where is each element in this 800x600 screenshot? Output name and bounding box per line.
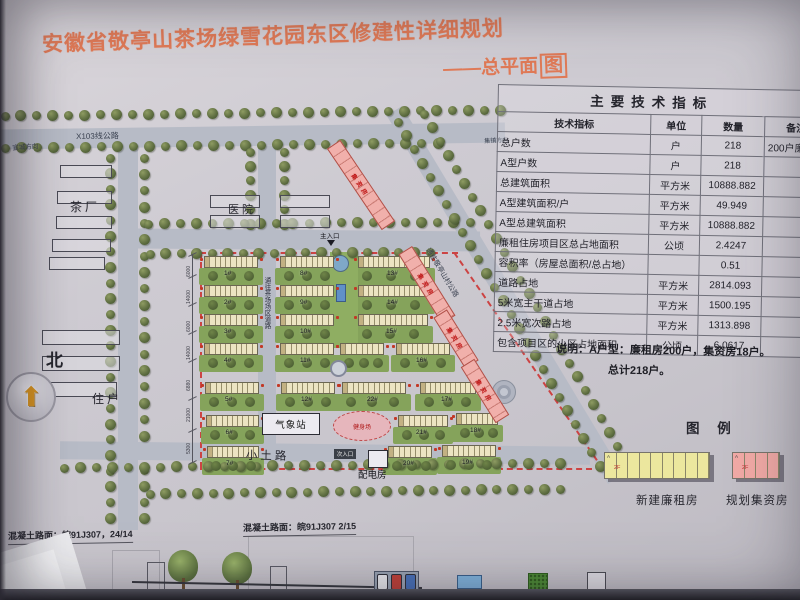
roadside-tree — [105, 481, 116, 492]
housing-unit — [379, 344, 383, 354]
building-number: 17# — [441, 396, 452, 403]
roadside-tree — [304, 139, 315, 150]
housing-row — [358, 314, 428, 326]
shrub — [498, 447, 501, 450]
photo-bottom-edge — [0, 589, 800, 600]
shrub — [276, 316, 279, 319]
main-entrance-arrow-icon — [327, 240, 335, 246]
roadside-tree — [394, 118, 403, 127]
housing-unit — [253, 257, 257, 267]
roadside-tree — [106, 154, 115, 163]
roadside-tree — [492, 485, 501, 494]
roadside-tree — [208, 140, 219, 151]
garden-tree — [208, 300, 218, 310]
housing-row — [388, 446, 432, 458]
roadside-tree — [140, 317, 149, 326]
roadside-tree — [271, 107, 282, 118]
indicator-value: 2.4247 — [699, 235, 762, 256]
indicator-unit: 平方米 — [649, 174, 700, 195]
shrub — [438, 447, 441, 450]
shrub — [200, 287, 203, 290]
roadside-tree — [209, 489, 218, 498]
table-grid: 技术指标单位数量备注 总户数户218200户廉租房A型户数户218总建筑面积平方… — [493, 111, 800, 358]
roadside-tree — [140, 415, 149, 424]
roadside-tree — [288, 108, 297, 117]
indicator-value: 218 — [701, 135, 764, 156]
roadside-tree — [299, 460, 310, 471]
table-col-header: 备注 — [765, 117, 800, 138]
housing-unit — [443, 416, 447, 426]
garden-tree — [245, 397, 255, 407]
garden-tree — [389, 397, 399, 407]
housing-unit — [254, 383, 258, 393]
roadside-tree — [556, 485, 565, 494]
indicator-value: 10888.882 — [700, 215, 763, 236]
page-subtitle-boxed-char: 图 — [540, 53, 568, 79]
indicator-remark — [763, 177, 800, 198]
roadside-tree — [80, 142, 91, 153]
north-arrow-circle: ⬆ — [6, 372, 56, 422]
page-subtitle: ——总平面图 — [443, 50, 568, 81]
indicator-remark — [764, 157, 800, 178]
shrub — [201, 384, 204, 387]
indicator-value: 49.949 — [700, 195, 763, 216]
weather-station-box: 气象站 — [262, 413, 320, 435]
housing-unit — [253, 315, 257, 325]
indicator-unit: 户 — [650, 154, 701, 175]
roadside-tree — [257, 141, 266, 150]
roadside-tree — [223, 488, 234, 499]
car-white-icon — [377, 574, 388, 590]
roadside-tree — [320, 108, 329, 117]
housing-row — [206, 415, 259, 427]
roadside-tree — [139, 332, 150, 343]
shrub — [392, 345, 395, 348]
garden-tree — [320, 271, 330, 281]
legend-swatch-规划集资房: A2F — [732, 452, 780, 479]
roadside-tree — [139, 202, 150, 213]
roadside-tree — [140, 154, 149, 163]
roadside-tree — [105, 513, 116, 524]
roadside-tree — [443, 150, 454, 161]
roadside-tree — [146, 490, 155, 499]
map-label-通往茶场场区道路: 通往茶场场区道路 — [261, 277, 271, 329]
roadside-tree — [246, 148, 255, 157]
roadside-tree — [413, 485, 424, 496]
dimension-value: 14000 — [186, 290, 192, 304]
legend-floor-tag: 2F — [614, 465, 620, 471]
roadside-tree — [47, 110, 58, 121]
roadside-tree — [112, 141, 123, 152]
map-label-小土路: 小土路 — [246, 447, 290, 464]
indicator-remark: 200户廉租房 — [764, 137, 800, 158]
housing-unit — [427, 447, 431, 457]
housing-row — [280, 314, 334, 326]
roadside-tree — [105, 419, 116, 430]
roadside-tree — [484, 220, 493, 229]
housing-row — [280, 343, 334, 355]
garden-tree — [284, 358, 294, 368]
roadside-tree — [458, 228, 467, 237]
building-number: 14# — [387, 299, 398, 306]
existing-building — [52, 239, 111, 252]
garden-tree — [209, 397, 219, 407]
roadside-tree — [398, 486, 407, 495]
shrub — [452, 415, 455, 418]
table-note-line2: 总计218户。 — [608, 361, 671, 378]
housing-row — [281, 382, 335, 394]
garden-tree — [402, 430, 412, 440]
roadside-tree — [565, 359, 574, 368]
shrub — [276, 287, 279, 290]
indicator-remark — [762, 257, 800, 278]
garden-tree — [284, 300, 294, 310]
roadside-tree — [401, 218, 410, 227]
roadside-tree — [444, 485, 455, 496]
building-number: 20# — [403, 460, 414, 467]
roadside-tree — [337, 218, 346, 227]
building-number: 15# — [386, 328, 397, 335]
map-label-配电房: 配电房 — [358, 467, 387, 481]
roadside-tree — [463, 105, 474, 116]
roadside-tree — [225, 141, 234, 150]
roadside-tree — [192, 109, 201, 118]
garden-tree — [321, 397, 331, 407]
garden-tree — [208, 271, 218, 281]
garden-tree — [346, 397, 356, 407]
housing-unit — [329, 315, 333, 325]
garden-tree — [409, 329, 419, 339]
building-number: 8# — [300, 270, 307, 277]
building-number: 12# — [301, 396, 312, 403]
building-number: 4# — [224, 357, 231, 364]
indicator-unit: 平方米 — [647, 274, 698, 295]
roadside-tree — [106, 279, 115, 288]
housing-unit — [401, 383, 405, 393]
roadside-tree — [32, 111, 41, 120]
section-post-1 — [147, 562, 165, 592]
roadside-tree — [106, 498, 115, 507]
roadside-tree — [555, 393, 564, 402]
shrub — [203, 448, 206, 451]
roadside-tree — [177, 489, 186, 498]
roadside-tree — [508, 459, 517, 468]
roadside-tree — [246, 176, 255, 185]
map-label-主入口: 主入口 — [320, 230, 340, 240]
pond-feature — [332, 255, 349, 272]
roadside-tree — [416, 217, 427, 228]
roadside-tree — [139, 462, 150, 473]
housing-row — [204, 314, 258, 326]
technical-indicators-table: 主要技术指标 技术指标单位数量备注 总户数户218200户廉租房A型户数户218… — [493, 84, 800, 358]
indicator-remark — [763, 217, 800, 238]
roadside-tree — [442, 200, 451, 209]
roadside-tree — [546, 378, 557, 389]
roadside-tree — [523, 458, 534, 469]
building-number: 6# — [226, 429, 233, 436]
dimension-value: 21000 — [186, 408, 192, 422]
roadside-tree — [144, 141, 155, 152]
roadside-tree — [79, 110, 90, 121]
roadside-tree — [420, 110, 429, 119]
shrub — [276, 345, 279, 348]
indicator-unit — [648, 254, 699, 275]
housing-unit — [329, 286, 333, 296]
roadside-tree — [399, 106, 410, 117]
roadside-tree — [140, 382, 149, 391]
garden-tree — [284, 329, 294, 339]
roadside-tree — [97, 142, 106, 151]
table-col-header: 数量 — [702, 115, 765, 136]
indicator-unit: 平方米 — [649, 214, 700, 235]
roadside-tree — [431, 105, 442, 116]
garden-tree — [359, 358, 369, 368]
roadside-tree — [160, 248, 171, 259]
garden-tree — [460, 428, 470, 438]
shrub — [336, 316, 339, 319]
roadside-tree — [105, 450, 116, 461]
building-number: 21# — [416, 429, 427, 436]
building-number: 18# — [470, 427, 481, 434]
housing-row — [420, 382, 476, 394]
roadside-tree — [106, 373, 115, 382]
roadside-tree — [176, 219, 185, 228]
roadside-tree — [107, 462, 118, 473]
secondary-entrance-box: 次入口 — [334, 449, 356, 459]
indicator-unit: 平方米 — [647, 314, 698, 335]
roadside-tree — [139, 234, 150, 245]
road-west-road — [118, 144, 138, 530]
garden-tree — [362, 329, 372, 339]
legend-type-tag: A — [607, 454, 610, 459]
roadside-tree — [350, 486, 361, 497]
roadside-tree — [160, 488, 171, 499]
roadside-tree — [105, 293, 116, 304]
roadside-tree — [139, 398, 150, 409]
table-col-header: 单位 — [651, 114, 702, 135]
roadside-tree — [507, 484, 518, 495]
roadside-tree — [289, 140, 298, 149]
building-number: 10# — [300, 328, 311, 335]
roadside-tree — [139, 365, 150, 376]
garden-tree — [244, 300, 254, 310]
roadside-tree — [139, 300, 150, 311]
roadside-tree — [139, 431, 150, 442]
roadside-tree — [286, 487, 297, 498]
dimension-value: 6000 — [186, 266, 192, 277]
roadside-tree — [139, 513, 150, 524]
indicator-value: 218 — [701, 155, 764, 176]
housing-unit — [253, 344, 257, 354]
map-label-住户: 住户 — [92, 390, 122, 407]
roadside-tree — [352, 217, 363, 228]
roadside-tree — [452, 165, 461, 174]
roadside-tree — [64, 111, 73, 120]
shrub — [338, 384, 341, 387]
photo-left-edge — [0, 0, 6, 600]
garden-tree — [285, 397, 295, 407]
roadside-tree — [143, 109, 154, 120]
legend-unit-cell — [756, 453, 768, 478]
roadside-tree — [459, 178, 470, 189]
roadside-tree — [449, 213, 460, 224]
roadside-tree — [256, 108, 265, 117]
indicator-unit: 公顷 — [648, 234, 699, 255]
shrub — [200, 258, 203, 261]
shrub — [336, 287, 339, 290]
roadside-tree — [318, 486, 329, 497]
roadside-tree — [146, 250, 155, 259]
roadside-tree — [105, 262, 116, 273]
legend-item-label: 规划集资房 — [726, 492, 789, 508]
legend-floor-tag: 2F — [742, 465, 748, 471]
garden-tree — [410, 300, 420, 310]
shrub — [354, 287, 357, 290]
existing-building — [56, 216, 112, 229]
roadside-tree — [65, 143, 74, 152]
fundraise-block-label: 集资房 — [350, 171, 373, 198]
roadside-tree — [15, 110, 26, 121]
roadside-tree — [140, 350, 149, 359]
fitness-ground: 健身场 — [333, 411, 391, 441]
power-room-box — [368, 450, 388, 468]
indicator-remark — [761, 317, 800, 338]
roadside-tree — [171, 461, 182, 472]
roadside-tree — [436, 137, 445, 146]
legend-unit-cell — [640, 453, 652, 478]
roadside-tree — [270, 249, 279, 258]
dimension-value: 6880 — [186, 380, 192, 391]
roadside-tree — [555, 458, 566, 469]
existing-building — [280, 215, 330, 228]
roadside-tree — [352, 107, 361, 116]
roadside-tree — [417, 158, 428, 169]
roadside-tree — [106, 310, 115, 319]
roadside-tree — [381, 486, 392, 497]
roadside-tree — [385, 139, 394, 148]
legend-unit-cell — [628, 453, 640, 478]
shrub — [277, 384, 280, 387]
site-plan-photo: 1#2#3#4#5#6#7#8#9#10#11#12#13#14#15#16#2… — [0, 0, 800, 600]
shrub — [416, 384, 419, 387]
map-label-X103线公路: X103线公路 — [76, 130, 119, 142]
roadside-tree — [613, 442, 622, 451]
roadside-tree — [92, 463, 101, 472]
roadside-tree — [331, 460, 342, 471]
roadside-tree — [207, 108, 218, 119]
building-number: 2# — [224, 299, 231, 306]
garden-tree — [482, 460, 492, 470]
roadside-tree — [140, 498, 149, 507]
garden-tree — [488, 428, 498, 438]
roadside-tree — [466, 218, 475, 227]
building-number: 22# — [367, 396, 378, 403]
housing-unit — [329, 257, 333, 267]
page-subtitle-text: ——总平面 — [443, 56, 539, 80]
roadside-tree — [429, 486, 438, 495]
roadside-tree — [524, 485, 533, 494]
housing-unit — [445, 344, 449, 354]
dimension-value: 5300 — [186, 443, 192, 454]
garden-tree — [208, 358, 218, 368]
roadside-tree — [468, 193, 477, 202]
roadside-tree — [156, 463, 165, 472]
indicator-remark — [761, 297, 800, 318]
garden-tree — [284, 271, 294, 281]
map-label-医院: 医院 — [228, 201, 256, 217]
roadside-tree — [175, 108, 186, 119]
building-number: 1# — [224, 270, 231, 277]
housing-row — [205, 382, 259, 394]
indicator-value: 2814.093 — [698, 275, 761, 296]
indicator-value: 1313.898 — [698, 315, 761, 336]
dimension-value: 6000 — [186, 321, 192, 332]
roadside-tree — [448, 106, 457, 115]
shrub — [434, 448, 437, 451]
garden-tree — [244, 271, 254, 281]
existing-building — [280, 195, 330, 208]
north-arrow-icon: ⬆ — [20, 384, 43, 411]
roadside-tree — [597, 414, 606, 423]
roadside-tree — [335, 487, 344, 496]
legend-unit-cell — [674, 453, 686, 478]
roadside-tree — [140, 186, 149, 195]
roadside-tree — [604, 427, 615, 438]
roadside-tree — [280, 176, 289, 185]
shrub — [336, 258, 339, 261]
roadside-tree — [245, 161, 256, 172]
roadside-tree — [367, 106, 378, 117]
housing-row — [442, 445, 496, 457]
housing-row — [280, 285, 334, 297]
garden-tree — [320, 300, 330, 310]
roadside-tree — [160, 110, 169, 119]
roadside-tree — [279, 161, 290, 172]
building-number: 16# — [416, 357, 427, 364]
footnote-right: 混凝土路面：皖91J307 2/15 — [243, 519, 356, 537]
roadside-tree — [124, 463, 133, 472]
roadside-tree — [384, 107, 393, 116]
water-swatch-icon — [457, 575, 482, 589]
roadside-tree — [303, 107, 314, 118]
roadside-tree — [347, 247, 358, 258]
garden-tree — [320, 358, 330, 368]
housing-unit — [254, 416, 258, 426]
roadside-tree — [193, 141, 202, 150]
legend-unit-cell — [698, 453, 710, 478]
roadside-tree — [96, 110, 105, 119]
map-label-宣城方向: 宣城方向 — [12, 140, 39, 152]
roadside-tree — [139, 267, 150, 278]
garden-tree — [392, 461, 402, 471]
roadside-tree — [540, 459, 549, 468]
building-number: 11# — [300, 357, 310, 364]
roadside-tree — [368, 138, 379, 149]
garden-tree — [211, 461, 221, 471]
garden-tree — [320, 329, 330, 339]
indicator-remark — [762, 237, 800, 258]
roadside-tree — [239, 108, 250, 119]
indicator-remark — [763, 197, 800, 218]
roadside-tree — [272, 488, 281, 497]
north-compass: 北 ⬆ — [4, 344, 74, 424]
indicator-unit: 户 — [650, 134, 701, 155]
map-label-茶厂: 茶厂 — [70, 198, 100, 215]
building-number: 5# — [225, 396, 232, 403]
roadside-tree — [161, 142, 170, 151]
roadside-tree — [461, 486, 470, 495]
roadside-tree — [491, 458, 502, 469]
